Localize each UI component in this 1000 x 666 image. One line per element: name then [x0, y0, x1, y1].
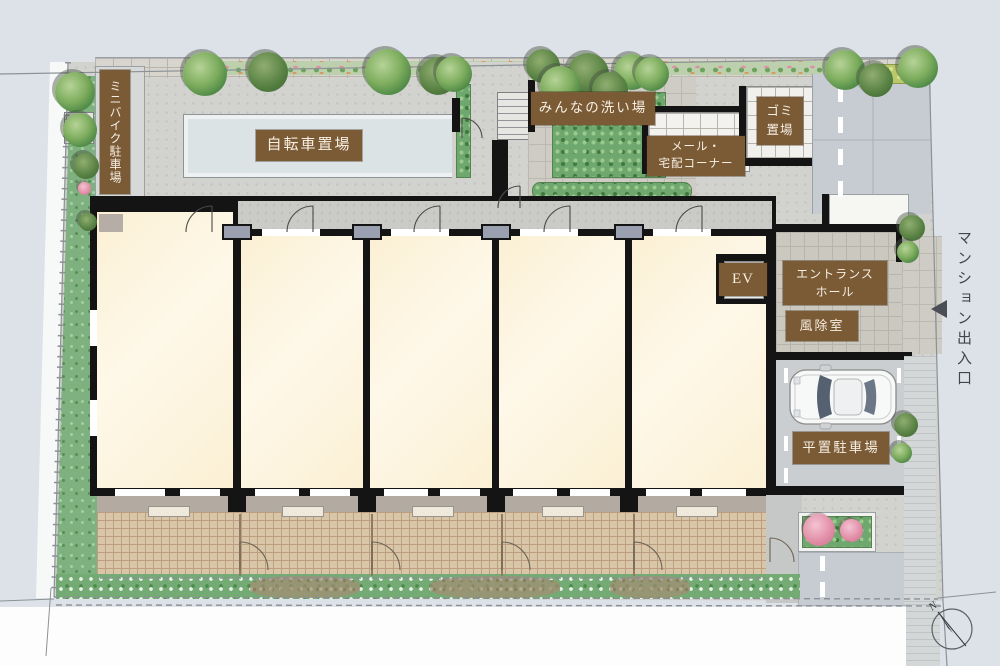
- tree-icon: [899, 215, 925, 241]
- tree-icon: [898, 48, 938, 88]
- flowering-shrub-icon: [803, 514, 835, 546]
- label-entrance-hall: エントランス ホール: [783, 261, 887, 305]
- tree-icon: [635, 57, 669, 91]
- label-flat-parking: 平置駐車場: [793, 432, 889, 464]
- tree-icon: [79, 213, 97, 231]
- tree-icon: [894, 413, 918, 437]
- label-washing-area: みんなの洗い場: [531, 92, 655, 125]
- tree-icon: [859, 63, 893, 97]
- label-mini-bike-parking: ミニバイク駐車場: [100, 70, 130, 194]
- label-windbreak-room: 風除室: [786, 311, 858, 341]
- label-building-entrance: マンション出入口: [948, 230, 974, 408]
- tree-icon: [248, 52, 288, 92]
- label-garbage-storage: ゴミ 置場: [757, 97, 803, 145]
- tree-icon: [897, 241, 919, 263]
- tree-icon: [892, 443, 912, 463]
- corridor-doors: [186, 206, 702, 232]
- tree-icon: [55, 72, 95, 112]
- site-boundary: [0, 58, 996, 666]
- car-icon: [790, 365, 896, 429]
- terrace-dividers: [100, 514, 794, 578]
- tree-icon: [183, 52, 227, 96]
- core-doors: [462, 118, 520, 208]
- parking-markings: [784, 86, 901, 597]
- flowering-shrub-icon: [78, 182, 91, 195]
- flowering-shrub-icon: [840, 519, 863, 542]
- site-plan: N ミニバイク駐車場 自転車置場 みんなの洗い場 メール・ 宅配コーナー ゴミ …: [0, 0, 1000, 666]
- compass-icon: N: [926, 599, 972, 649]
- label-bicycle-parking: 自転車置場: [256, 130, 362, 161]
- tree-icon: [63, 113, 97, 147]
- label-mail-delivery-corner: メール・ 宅配コーナー: [647, 136, 745, 176]
- tree-icon: [365, 49, 411, 95]
- tree-icon: [436, 56, 472, 92]
- entrance-arrow-icon: [931, 300, 947, 318]
- label-elevator: EV: [719, 263, 767, 296]
- tree-icon: [73, 153, 99, 179]
